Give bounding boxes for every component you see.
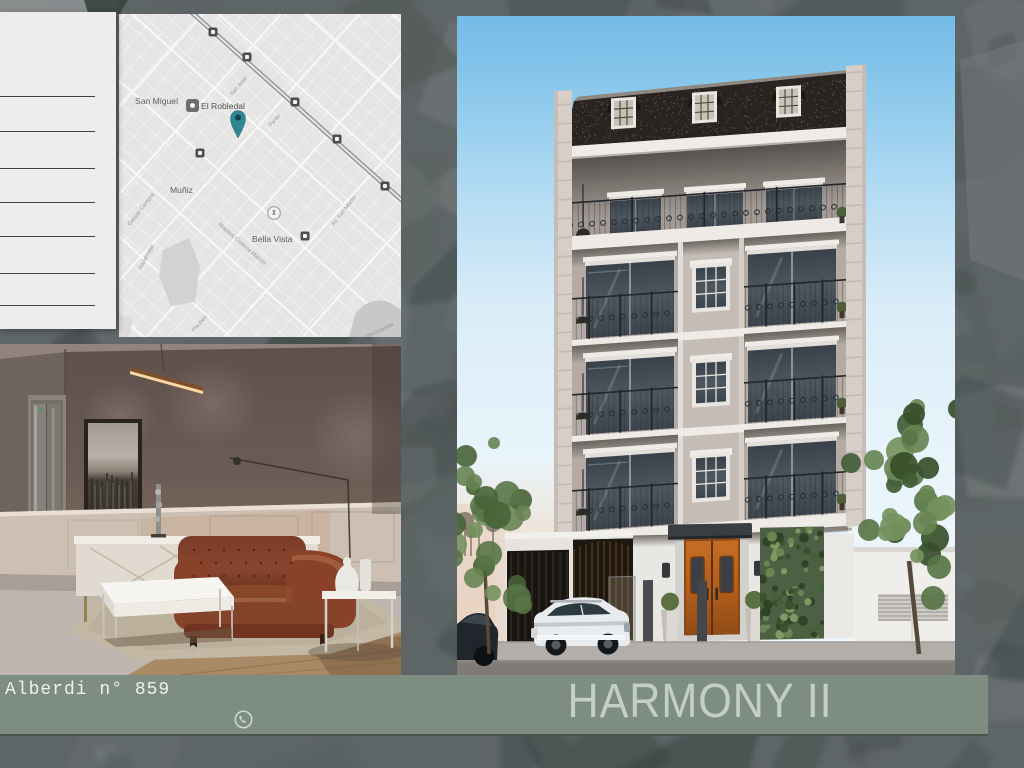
svg-text:El Robledal: El Robledal: [201, 101, 245, 111]
svg-text:Muñiz: Muñiz: [170, 185, 193, 195]
svg-text:San Miguel: San Miguel: [135, 96, 178, 106]
svg-text:Bella Vista: Bella Vista: [252, 234, 293, 244]
